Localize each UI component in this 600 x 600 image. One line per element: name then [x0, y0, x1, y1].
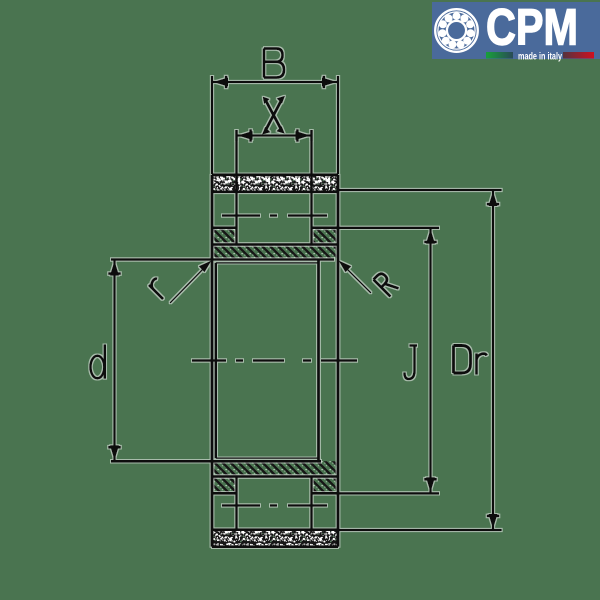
svg-text:made in italy: made in italy — [518, 50, 562, 62]
svg-text:CPM: CPM — [486, 0, 578, 56]
